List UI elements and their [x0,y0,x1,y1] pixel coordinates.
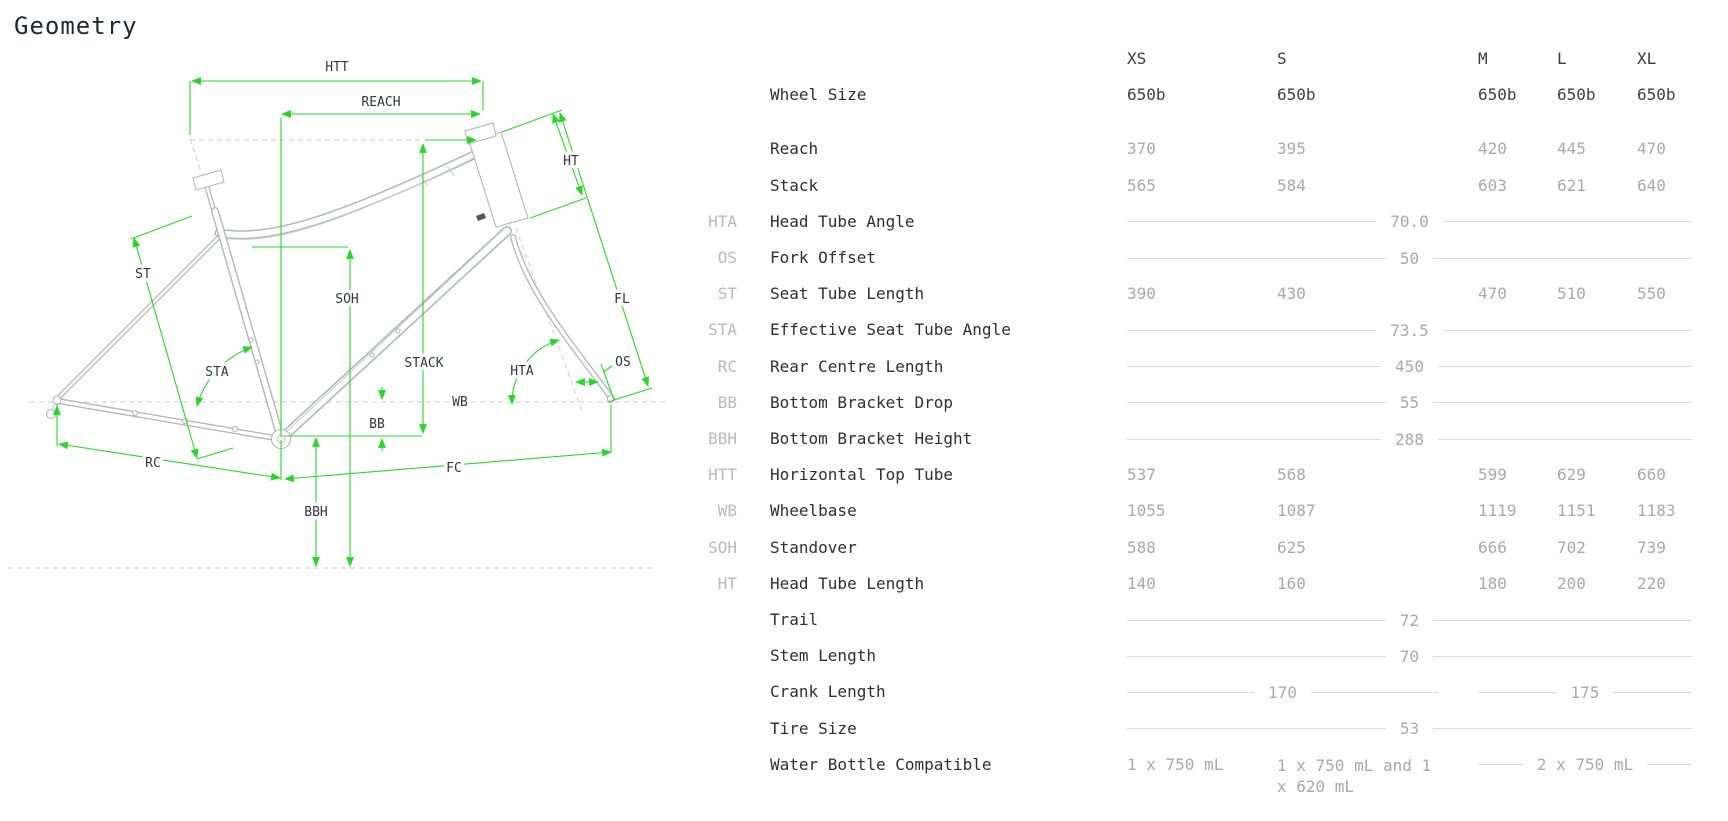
merged-value: 450 [1127,349,1692,385]
value-cell: 180 [1478,566,1507,602]
merged-value: 288 [1127,421,1692,457]
dim-label-htt: HTT [325,60,349,75]
dim-label-reach: REACH [361,95,400,110]
table-row: Stem Length70 [640,638,1700,674]
table-row: RCRear Centre Length450 [640,349,1700,385]
dim-label-fc: FC [446,461,462,476]
merged-value: 70 [1127,638,1692,674]
table-row: BBHBottom Bracket Height288 [640,421,1700,457]
value-cell: 1183 [1637,493,1676,529]
value-cell: 220 [1637,566,1666,602]
row-abbr: HT [640,566,737,602]
merged-value: 73.5 [1127,312,1692,348]
table-row: Water Bottle Compatible1 x 750 mL1 x 750… [640,747,1700,783]
table-row: Tire Size53 [640,711,1700,747]
table-row: Reach370395420445470 [640,131,1700,167]
row-abbr: STA [640,312,737,348]
value-cell: 1 x 750 mL and 1 x 620 mL [1277,747,1447,797]
table-row: Stack565584603621640 [640,168,1700,204]
merged-value-text: 72 [1400,611,1419,630]
value-cell: 650b [1557,77,1596,113]
row-label: Standover [770,530,857,566]
value-cell: 1119 [1478,493,1517,529]
dim-label-ht: HT [563,154,579,169]
rule-line [1127,692,1254,693]
row-abbr: ST [640,276,737,312]
rule-line [1443,330,1692,331]
table-row: HTHead Tube Length140160180200220 [640,566,1700,602]
dim-label-bbh: BBH [304,505,327,520]
row-label: Tire Size [770,711,857,747]
rule-line [1478,764,1523,765]
row-label: Reach [770,131,818,167]
merged-value-text: 73.5 [1390,321,1429,340]
rule-line [1433,656,1692,657]
rule-line [1443,221,1692,222]
value-cell: 584 [1277,168,1306,204]
value-cell: 200 [1557,566,1586,602]
rule-line [1127,221,1376,222]
value-cell: 565 [1127,168,1156,204]
rule-line [1127,366,1381,367]
table-row: SOHStandover588625666702739 [640,530,1700,566]
table-row: HTTHorizontal Top Tube537568599629660 [640,457,1700,493]
value-cell: 537 [1127,457,1156,493]
dim-label-rc: RC [145,456,161,471]
merged-value-m-xl: 175 [1478,674,1692,710]
value-cell: 1151 [1557,493,1596,529]
dim-label-fl: FL [614,292,630,307]
head-tube [469,132,528,227]
derailleur-hanger [47,410,56,419]
rule-line [1438,366,1692,367]
dim-label-stack: STACK [404,356,443,371]
merged-value-text: 175 [1571,683,1600,702]
value-cell: 1087 [1277,493,1316,529]
table-row: OSFork Offset50 [640,240,1700,276]
merged-value-text: 70 [1400,647,1419,666]
merged-value-text: 50 [1400,249,1419,268]
row-abbr: BB [640,385,737,421]
rear-dropout [53,396,61,404]
value-cell: 666 [1478,530,1507,566]
rule-line [1127,439,1381,440]
rule-line [1478,692,1557,693]
value-cell: 588 [1127,530,1156,566]
row-abbr: HTT [640,457,737,493]
rule-line [1433,402,1692,403]
row-label: Effective Seat Tube Angle [770,312,1011,348]
merged-value: 53 [1127,711,1692,747]
table-row: STSeat Tube Length390430470510550 [640,276,1700,312]
size-header-m: M [1478,41,1488,77]
row-label: Head Tube Length [770,566,924,602]
rule-line [1127,728,1386,729]
dim-label-bb: BB [369,417,385,432]
row-label: Crank Length [770,674,886,710]
size-header-s: S [1277,41,1287,77]
rule-line [1433,258,1692,259]
value-cell: 739 [1637,530,1666,566]
saddle-clamp [193,170,224,190]
merged-value-text: 170 [1268,683,1297,702]
row-label: Trail [770,602,818,638]
row-label: Fork Offset [770,240,876,276]
value-cell: 160 [1277,566,1306,602]
value-cell: 702 [1557,530,1586,566]
row-label: Stack [770,168,818,204]
rule-line [1647,764,1692,765]
table-row: Wheel Size650b650b650b650b650b [640,77,1700,113]
size-header-l: L [1557,41,1567,77]
rule-line [1127,258,1386,259]
frame-diagram: HTT REACH HT FL OS HTA WB STACK SOH BB B… [0,0,700,620]
merged-value: 72 [1127,602,1692,638]
value-cell: 568 [1277,457,1306,493]
construction-lines [8,139,668,568]
geometry-page: Geometry [0,0,1728,821]
table-row: HTAHead Tube Angle70.0 [640,204,1700,240]
row-abbr: WB [640,493,737,529]
rule-line [1433,728,1692,729]
rule-line [1433,620,1692,621]
row-label: Wheel Size [770,77,866,113]
merged-value-m-xl: 2 x 750 mL [1478,747,1692,783]
value-cell: 430 [1277,276,1306,312]
row-label: Head Tube Angle [770,204,915,240]
rule-line [1127,402,1386,403]
row-label: Horizontal Top Tube [770,457,953,493]
merged-value: 70.0 [1127,204,1692,240]
row-label: Seat Tube Length [770,276,924,312]
rule-line [1127,620,1386,621]
value-cell: 629 [1557,457,1586,493]
size-header-xl: XL [1637,41,1656,77]
size-header-row: XSSMLXL [640,41,1700,77]
rule-line [1613,692,1692,693]
bike-frame-drawing [47,123,615,449]
dim-label-wb: WB [452,395,468,410]
value-cell: 1 x 750 mL [1127,747,1223,783]
row-label: Rear Centre Length [770,349,943,385]
value-cell: 650b [1478,77,1517,113]
value-cell: 510 [1557,276,1586,312]
merged-value-xs-s: 170 [1127,674,1438,710]
merged-value-text: 2 x 750 mL [1537,755,1633,774]
merged-value: 50 [1127,240,1692,276]
table-row: BBBottom Bracket Drop55 [640,385,1700,421]
value-cell: 650b [1127,77,1166,113]
merged-value-text: 450 [1395,357,1424,376]
row-abbr: RC [640,349,737,385]
value-cell: 599 [1478,457,1507,493]
value-cell: 1055 [1127,493,1166,529]
rule-line [1438,439,1692,440]
value-cell: 660 [1637,457,1666,493]
value-cell: 420 [1478,131,1507,167]
table-row: Trail72 [640,602,1700,638]
value-cell: 390 [1127,276,1156,312]
value-cell: 470 [1637,131,1666,167]
dim-label-os: OS [615,355,631,370]
value-cell: 140 [1127,566,1156,602]
size-header-xs: XS [1127,41,1146,77]
merged-value-text: 55 [1400,393,1419,412]
dim-label-sta: STA [205,365,229,380]
value-cell: 650b [1637,77,1676,113]
value-cell: 650b [1277,77,1316,113]
row-abbr: BBH [640,421,737,457]
value-cell: 550 [1637,276,1666,312]
cable-port [476,213,486,221]
row-label: Bottom Bracket Drop [770,385,953,421]
rule-line [1311,692,1438,693]
dimension-labels: HTT REACH HT FL OS HTA WB STACK SOH BB B… [135,60,631,520]
value-cell: 395 [1277,131,1306,167]
row-abbr: SOH [640,530,737,566]
value-cell: 640 [1637,168,1666,204]
merged-value-text: 53 [1400,719,1419,738]
geometry-table: XSSMLXLWheel Size650b650b650b650b650bRea… [640,41,1700,821]
merged-value-text: 288 [1395,430,1424,449]
table-row: STAEffective Seat Tube Angle73.5 [640,312,1700,348]
row-abbr: OS [640,240,737,276]
rule-line [1127,330,1376,331]
merged-value-text: 70.0 [1390,212,1429,231]
value-cell: 445 [1557,131,1586,167]
row-label: Bottom Bracket Height [770,421,972,457]
value-cell: 625 [1277,530,1306,566]
row-label: Stem Length [770,638,876,674]
rule-line [1127,656,1386,657]
row-abbr: HTA [640,204,737,240]
value-cell: 603 [1478,168,1507,204]
dim-label-st: ST [135,267,151,282]
dim-label-soh: SOH [335,292,358,307]
value-cell: 370 [1127,131,1156,167]
value-cell: 621 [1557,168,1586,204]
merged-value: 55 [1127,385,1692,421]
table-row: Crank Length170175 [640,674,1700,710]
value-cell: 470 [1478,276,1507,312]
row-label: Water Bottle Compatible [770,747,992,783]
table-row: WBWheelbase10551087111911511183 [640,493,1700,529]
dim-label-hta: HTA [510,364,534,379]
row-label: Wheelbase [770,493,857,529]
